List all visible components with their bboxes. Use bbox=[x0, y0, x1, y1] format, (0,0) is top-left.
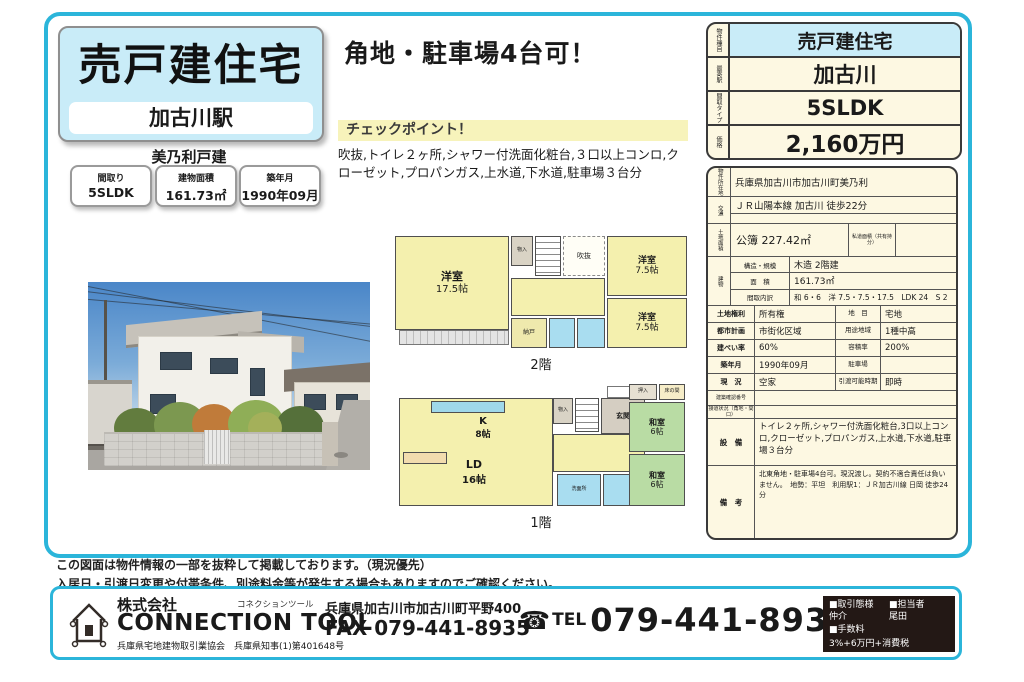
floorplan-2f-caption: 2階 bbox=[393, 354, 689, 373]
structure-value: 木造 2階建 bbox=[790, 257, 956, 272]
table-row: 物件種目 売戸建住宅 bbox=[708, 24, 960, 58]
room-name: 和室 bbox=[649, 471, 665, 480]
private-road-label: 私道面積（共有持分） bbox=[849, 224, 896, 256]
floorplan-1f: K 8帖 LD 16帖 物入 玄関 洗面所 押入 床の間 和室 6帖 bbox=[393, 382, 689, 508]
photo-window bbox=[160, 352, 192, 370]
photo-window bbox=[210, 358, 238, 374]
room-size: 17.5帖 bbox=[436, 284, 468, 296]
hall-2f bbox=[511, 278, 605, 316]
property-photo bbox=[88, 282, 370, 470]
row-label-text: 価格 bbox=[715, 136, 721, 148]
room-size: 7.5帖 bbox=[635, 266, 658, 276]
kitchen-label: K 8帖 bbox=[453, 416, 513, 440]
phone-icon: ☎ bbox=[519, 606, 550, 635]
row-label: 間取タイプ bbox=[708, 92, 730, 124]
row-label-text: 土地面積 bbox=[716, 229, 722, 251]
balcony-2f bbox=[399, 330, 509, 345]
row-label: 物件所在地 bbox=[708, 168, 731, 196]
table-row-address: 物件所在地 兵庫県加古川市加古川町美乃利 bbox=[708, 168, 956, 197]
access-value: ＪＲ山陽本線 加古川 徒歩22分 bbox=[731, 197, 956, 214]
checkpoint-title: チェックポイント！ bbox=[338, 120, 688, 141]
deal-info-box: ■取引態様 ■担当者 仲介 尾田 ■手数料 3%+6万円+消費税 bbox=[823, 596, 955, 652]
photo-window bbox=[250, 368, 265, 396]
company-address: 兵庫県加古川市加古川町平野400 bbox=[325, 598, 521, 617]
tel-label: TEL bbox=[552, 610, 586, 630]
pair-label: 現 況 bbox=[708, 374, 755, 390]
table-row-pair: 都市計画 市街化区域 用途地域 1種中高 bbox=[708, 323, 956, 340]
access-value-2 bbox=[731, 214, 956, 223]
row-label: 交通 bbox=[708, 197, 731, 223]
row-label-text: 交通 bbox=[716, 205, 722, 216]
room-northeast-2f: 洋室 7.5帖 bbox=[607, 236, 687, 296]
property-type-banner: 売戸建住宅 加古川駅 bbox=[58, 26, 324, 142]
stairs-2f bbox=[535, 236, 561, 276]
road-value bbox=[755, 406, 956, 418]
equipment-value: トイレ２ヶ所,シャワー付洗面化粧台,3口以上コンロ,クローゼット,プロパンガス,… bbox=[755, 419, 956, 465]
row-label: 最寄駅 bbox=[708, 58, 730, 90]
building-rows: 構造・規模 木造 2階建 面 積 161.73㎡ 間取内訳 和 6・6 洋 7.… bbox=[731, 257, 956, 305]
row-label: 土地面積 bbox=[708, 224, 731, 256]
row-label: 設 備 bbox=[708, 419, 755, 465]
room-name: 吹抜 bbox=[577, 252, 591, 260]
staff-value: 尾田 bbox=[889, 612, 949, 624]
company-kana: コネクションツール bbox=[237, 598, 314, 610]
row-label: 価格 bbox=[708, 126, 730, 158]
room-size: 8帖 bbox=[453, 427, 513, 440]
price-summary-table: 物件種目 売戸建住宅 最寄駅 加古川 間取タイプ 5SLDK 価格 2,160万… bbox=[706, 22, 962, 160]
room-breakdown-value: 和 6・6 洋 7.5・7.5・17.5 LDK 24 S 2 bbox=[790, 290, 956, 305]
table-row: 最寄駅 加古川 bbox=[708, 58, 960, 92]
photo-wall-pillar bbox=[322, 422, 338, 466]
table-row-pair: 築年月 1990年09月 駐車場 bbox=[708, 357, 956, 374]
row-label-text: 物件種目 bbox=[715, 28, 721, 52]
japanese-room-south: 和室 6帖 bbox=[629, 454, 685, 506]
table-row: 価格 2,160万円 bbox=[708, 126, 960, 158]
pair-value-2: 1種中高 bbox=[881, 323, 956, 339]
room-size: 6帖 bbox=[650, 427, 663, 436]
pair-label-2: 用途地域 bbox=[836, 323, 881, 339]
deal-mode-label: ■取引態様 bbox=[829, 600, 889, 612]
room-name: LD bbox=[439, 458, 509, 471]
checkpoint-text: 吹抜,トイレ２ヶ所,シャワー付洗面化粧台,３口以上コンロ,クローゼット,プロパン… bbox=[338, 146, 690, 181]
room-size: 16帖 bbox=[439, 471, 509, 486]
tel-number: 079-441-8934 bbox=[590, 601, 851, 639]
row-label: 備 考 bbox=[708, 466, 755, 538]
row-label-text: 物件所在地 bbox=[716, 168, 722, 196]
room-name: 床の間 bbox=[664, 389, 679, 395]
table-row-remarks: 備 考 北東角地・駐車場4台可。現況渡し。契約不適合責任は負いません。 地勢：平… bbox=[708, 466, 956, 538]
pair-label-2: 容積率 bbox=[836, 340, 881, 356]
spec-label: 築年月 bbox=[241, 171, 319, 184]
staff-label: ■担当者 bbox=[889, 600, 949, 612]
table-row-road: 接道状況（角地・間口） bbox=[708, 406, 956, 419]
stairs-1f bbox=[575, 398, 599, 432]
company-fax: FAX 079-441-8935 bbox=[325, 616, 530, 640]
catch-headline: 角地・駐車場4台可！ bbox=[344, 34, 596, 70]
price-value: 2,160万円 bbox=[730, 126, 960, 158]
table-row: 間取タイプ 5SLDK bbox=[708, 92, 960, 126]
station-value: 加古川 bbox=[730, 58, 960, 90]
pair-label: 都市計画 bbox=[708, 323, 755, 339]
pair-value-2: 即時 bbox=[881, 374, 956, 390]
pair-label: 建ぺい率 bbox=[708, 340, 755, 356]
row-label: 建物 bbox=[708, 257, 731, 305]
deal-labels-row: ■取引態様 ■担当者 bbox=[829, 600, 949, 612]
row-label-text: 最寄駅 bbox=[715, 65, 721, 83]
pair-value: 所有権 bbox=[755, 306, 836, 322]
table-subrow: 構造・規模 木造 2階建 bbox=[731, 257, 956, 273]
room-name: 洋室 bbox=[638, 313, 656, 323]
row-label: 物件種目 bbox=[708, 24, 730, 56]
land-area-value: 公簿 227.42㎡ bbox=[731, 224, 849, 256]
table-row-equipment: 設 備 トイレ２ヶ所,シャワー付洗面化粧台,3口以上コンロ,クローゼット,プロパ… bbox=[708, 419, 956, 466]
pair-value-2 bbox=[881, 357, 956, 373]
pair-label-2: 引渡可能時期 bbox=[836, 374, 881, 390]
floorplan-1f-caption: 1階 bbox=[393, 512, 689, 531]
spec-box-built: 築年月 1990年09月 bbox=[239, 165, 321, 207]
pair-value: 空家 bbox=[755, 374, 836, 390]
row-label-text: 建物 bbox=[716, 276, 722, 287]
closet-1f: 物入 bbox=[553, 398, 573, 424]
row-label-text: 間取タイプ bbox=[715, 93, 721, 123]
subrow-label: 構造・規模 bbox=[731, 257, 790, 272]
washroom-2f bbox=[577, 318, 605, 348]
kitchen-counter bbox=[431, 401, 505, 413]
pair-value-2: 200% bbox=[881, 340, 956, 356]
pair-label-2: 駐車場 bbox=[836, 357, 881, 373]
station-banner: 加古川駅 bbox=[69, 102, 313, 134]
layout-value: 5SLDK bbox=[730, 92, 960, 124]
pair-value-2: 宅地 bbox=[881, 306, 956, 322]
washroom-1f: 洗面所 bbox=[557, 474, 601, 506]
company-footer: 株式会社 コネクションツール CONNECTION TOOL 兵庫県宅地建物取引… bbox=[50, 586, 962, 660]
room-name: 物入 bbox=[517, 248, 527, 254]
closet-2f: 物入 bbox=[511, 236, 533, 266]
table-row-pair: 土地権利 所有権 地 目 宅地 bbox=[708, 306, 956, 323]
room-name: 玄関 bbox=[616, 412, 630, 420]
japanese-room-north: 和室 6帖 bbox=[629, 402, 685, 452]
storage-room-2f: 納戸 bbox=[511, 318, 547, 348]
row-label: 建築確認番号 bbox=[708, 391, 755, 405]
spec-value: 1990年09月 bbox=[241, 185, 319, 204]
room-name: 和室 bbox=[649, 418, 665, 427]
deal-mode-value: 仲介 bbox=[829, 612, 889, 624]
living-dining-label: LD 16帖 bbox=[439, 458, 509, 486]
room-name: 納戸 bbox=[523, 330, 535, 337]
pair-label: 土地権利 bbox=[708, 306, 755, 322]
spec-box-area: 建物面積 161.73㎡ bbox=[155, 165, 237, 207]
access-values: ＪＲ山陽本線 加古川 徒歩22分 bbox=[731, 197, 956, 223]
row-label: 接道状況（角地・間口） bbox=[708, 406, 755, 418]
tokonoma-alcove: 床の間 bbox=[659, 384, 685, 400]
table-row-confirm-number: 建築確認番号 bbox=[708, 391, 956, 406]
room-southeast-2f: 洋室 7.5帖 bbox=[607, 298, 687, 348]
table-row-land-area: 土地面積 公簿 227.42㎡ 私道面積（共有持分） bbox=[708, 224, 956, 257]
room-name: 押入 bbox=[638, 389, 648, 395]
real-estate-flyer: 売戸建住宅 加古川駅 美乃利戸建 間取り 5SLDK 建物面積 161.73㎡ … bbox=[0, 0, 1024, 682]
oshiire-closet: 押入 bbox=[629, 384, 657, 400]
pair-value: 1990年09月 bbox=[755, 357, 836, 373]
room-name: 洋室 bbox=[638, 256, 656, 266]
telephone-block: ☎ TEL 079-441-8934 bbox=[519, 601, 851, 639]
toilet-2f bbox=[549, 318, 575, 348]
spec-label: 間取り bbox=[72, 171, 150, 184]
property-detail-table: 物件所在地 兵庫県加古川市加古川町美乃利 交通 ＪＲ山陽本線 加古川 徒歩22分… bbox=[706, 166, 958, 540]
table-row-pair: 建ぺい率 60% 容積率 200% bbox=[708, 340, 956, 357]
table-subrow: 間取内訳 和 6・6 洋 7.5・7.5・17.5 LDK 24 S 2 bbox=[731, 290, 956, 305]
company-logo-icon bbox=[67, 597, 111, 649]
table-row-access: 交通 ＪＲ山陽本線 加古川 徒歩22分 bbox=[708, 197, 956, 224]
subrow-label: 面 積 bbox=[731, 273, 790, 288]
remarks-value: 北東角地・駐車場4台可。現況渡し。契約不適合責任は負いません。 地勢：平坦 利用… bbox=[755, 466, 956, 538]
confirm-number-value bbox=[755, 391, 956, 405]
spec-value: 161.73㎡ bbox=[157, 185, 235, 204]
room-name: 洋室 bbox=[441, 271, 463, 284]
spec-label: 建物面積 bbox=[157, 171, 235, 184]
table-row-building: 建物 構造・規模 木造 2階建 面 積 161.73㎡ 間取内訳 和 6・6 洋… bbox=[708, 257, 956, 306]
room-name: 物入 bbox=[558, 408, 568, 414]
pair-label-2: 地 目 bbox=[836, 306, 881, 322]
photo-gate bbox=[204, 430, 230, 464]
room-west-2f: 洋室 17.5帖 bbox=[395, 236, 509, 330]
private-road-value bbox=[896, 224, 956, 256]
property-type-title: 売戸建住宅 bbox=[60, 31, 322, 93]
pair-value: 60% bbox=[755, 340, 836, 356]
spec-box-layout: 間取り 5SLDK bbox=[70, 165, 152, 207]
room-name: K bbox=[453, 416, 513, 427]
photo-manhole bbox=[334, 452, 348, 458]
room-size: 7.5帖 bbox=[635, 323, 658, 333]
table-row-pair: 現 況 空家 引渡可能時期 即時 bbox=[708, 374, 956, 391]
deal-values-row: 仲介 尾田 bbox=[829, 612, 949, 624]
room-size: 6帖 bbox=[650, 480, 663, 489]
room-name: 洗面所 bbox=[571, 487, 586, 493]
fee-value: 3%+6万円+消費税 bbox=[829, 639, 949, 651]
spec-value: 5SLDK bbox=[72, 185, 150, 200]
fee-label: ■手数料 bbox=[829, 625, 949, 637]
address-value: 兵庫県加古川市加古川町美乃利 bbox=[731, 168, 956, 196]
pair-label: 築年月 bbox=[708, 357, 755, 373]
table-subrow: 面 積 161.73㎡ bbox=[731, 273, 956, 289]
pair-value: 市街化区域 bbox=[755, 323, 836, 339]
disclaimer-line-1: この図面は物件情報の一部を抜粋して掲載しております。（現況優先） bbox=[56, 556, 560, 575]
floorplan-2f: 洋室 17.5帖 物入 吹抜 洋室 7.5帖 洋室 7.5帖 納戸 bbox=[393, 230, 689, 352]
property-type-value: 売戸建住宅 bbox=[730, 24, 960, 56]
atrium-void: 吹抜 bbox=[563, 236, 605, 276]
company-license: 兵庫県宅地建物取引業協会 兵庫県知事(1)第401648号 bbox=[117, 639, 344, 652]
subrow-label: 間取内訳 bbox=[731, 290, 790, 305]
building-name: 美乃利戸建 bbox=[58, 146, 320, 167]
floor-area-value: 161.73㎡ bbox=[790, 273, 956, 288]
